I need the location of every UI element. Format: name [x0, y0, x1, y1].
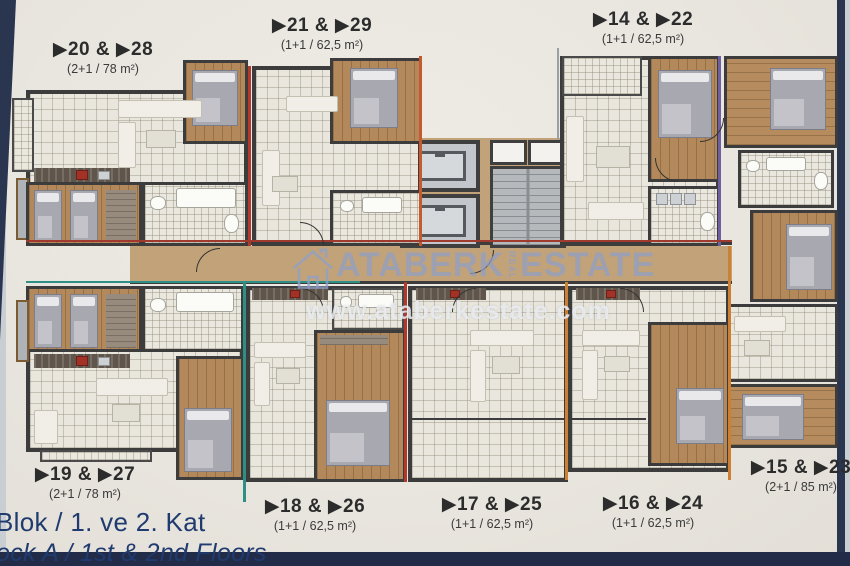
sofa — [582, 350, 598, 400]
sofa — [566, 116, 584, 182]
unit-numbers: ▶14 & ▶22 — [593, 8, 693, 31]
stair-window-1 — [490, 140, 527, 165]
unit-label-21-29: ▶21 & ▶29 (1+1 / 62,5 m²) — [272, 14, 372, 52]
sofa — [254, 362, 270, 406]
unit-numbers: ▶19 & ▶27 — [35, 463, 135, 486]
bed — [742, 394, 804, 440]
bed — [70, 190, 98, 242]
toilet-icon — [814, 172, 828, 190]
floor-plan-photo: ATABERK REAL ESTATE www.ataberkestate.co… — [0, 0, 850, 566]
sink-icon — [98, 171, 110, 180]
sink-icon — [150, 298, 166, 312]
unit-numbers: ▶18 & ▶26 — [265, 495, 365, 518]
coffee-table — [492, 356, 520, 374]
stove-icon — [290, 290, 300, 298]
sink-icon — [746, 160, 760, 172]
stove-icon — [76, 356, 88, 366]
sofa — [96, 378, 168, 396]
balcony — [40, 450, 152, 462]
coffee-table — [112, 404, 140, 422]
balcony — [562, 56, 642, 96]
toilet-icon — [700, 212, 715, 231]
wardrobe — [320, 335, 388, 345]
balcony-wall — [572, 418, 646, 420]
sofa — [254, 342, 306, 358]
bed — [770, 68, 826, 130]
sofa — [118, 122, 136, 168]
wardrobe — [106, 294, 136, 348]
unit-label-16-24: ▶16 & ▶24 (1+1 / 62,5 m²) — [603, 492, 703, 530]
divider-orange-bottom-2 — [728, 246, 731, 480]
unit-label-18-26: ▶18 & ▶26 (1+1 / 62,5 m²) — [265, 495, 365, 533]
staircase — [490, 166, 566, 248]
sink-icon — [340, 296, 352, 308]
vanity-icon — [670, 193, 682, 205]
divider-orange-top — [419, 56, 422, 246]
unit-spec: (1+1 / 62,5 m²) — [593, 32, 693, 46]
unit-label-17-25: ▶17 & ▶25 (1+1 / 62,5 m²) — [442, 493, 542, 531]
sink-icon — [98, 357, 110, 366]
bed — [34, 294, 62, 348]
unit-label-19-27: ▶19 & ▶27 (2+1 / 78 m²) — [35, 463, 135, 501]
vanity-icon — [684, 193, 696, 205]
caption-turkish: Blok / 1. ve 2. Kat — [0, 509, 267, 536]
coffee-table — [744, 340, 770, 356]
bed — [184, 408, 232, 472]
sink-icon — [340, 200, 354, 212]
vanity-icon — [656, 193, 668, 205]
bathtub-icon — [176, 188, 236, 208]
unit-spec: (2+1 / 78 m²) — [35, 487, 135, 501]
core-outer-wall-line — [557, 48, 559, 140]
shower-icon — [358, 294, 394, 308]
stove-icon — [606, 290, 616, 298]
unit-label-14-22: ▶14 & ▶22 (1+1 / 62,5 m²) — [593, 8, 693, 46]
unit-numbers: ▶20 & ▶28 — [53, 38, 153, 61]
accent-line-teal — [26, 281, 360, 283]
toilet-icon — [224, 214, 239, 233]
window-glass — [16, 300, 29, 362]
balcony — [12, 98, 34, 172]
plan-caption: Blok / 1. ve 2. Kat ock A / 1st & 2nd Fl… — [0, 509, 267, 566]
divider-teal — [243, 282, 246, 502]
coffee-table — [146, 130, 176, 148]
bed — [676, 388, 724, 444]
sofa — [118, 100, 202, 118]
unit-numbers: ▶17 & ▶25 — [442, 493, 542, 516]
balcony-wall — [412, 418, 564, 420]
unit-numbers: ▶15 & ▶23 — [751, 456, 850, 479]
bed — [326, 400, 390, 466]
shower-icon — [362, 197, 402, 213]
sofa — [734, 316, 786, 332]
divider-red-top — [248, 66, 251, 246]
unit-spec: (2+1 / 78 m²) — [53, 62, 153, 76]
unit-17-25-living — [408, 286, 568, 482]
divider-purple — [718, 56, 721, 246]
unit-spec: (2+1 / 85 m²) — [751, 480, 850, 494]
corridor — [130, 246, 732, 284]
coffee-table — [604, 356, 630, 372]
accent-line-red — [26, 240, 732, 242]
unit-spec: (1+1 / 62,5 m²) — [442, 517, 542, 531]
sofa — [582, 330, 640, 346]
unit-spec: (1+1 / 62,5 m²) — [272, 38, 372, 52]
sofa — [470, 350, 486, 402]
sofa — [470, 330, 534, 346]
caption-english: ock A / 1st & 2nd Floors — [0, 540, 267, 566]
sofa — [286, 96, 338, 112]
bathtub-icon — [176, 292, 234, 312]
bed — [70, 294, 98, 348]
unit-spec: (1+1 / 62,5 m²) — [603, 516, 703, 530]
bed — [350, 68, 398, 128]
divider-orange-bottom-1 — [565, 282, 568, 480]
coffee-table — [596, 146, 630, 168]
tv-unit — [276, 368, 300, 384]
stove-icon — [76, 170, 88, 180]
sofa — [588, 202, 644, 220]
coffee-table — [272, 176, 298, 192]
armchair — [34, 410, 58, 444]
unit-label-20-28: ▶20 & ▶28 (2+1 / 78 m²) — [53, 38, 153, 76]
unit-numbers: ▶16 & ▶24 — [603, 492, 703, 515]
bed — [786, 224, 832, 290]
unit-spec: (1+1 / 62,5 m²) — [265, 519, 365, 533]
sink-icon — [150, 196, 166, 210]
unit-numbers: ▶21 & ▶29 — [272, 14, 372, 37]
unit-label-15-23: ▶15 & ▶23 (2+1 / 85 m²) — [751, 456, 850, 494]
wardrobe — [106, 190, 136, 242]
divider-red-bottom — [404, 282, 407, 482]
shower-icon — [766, 157, 806, 171]
bed — [34, 190, 62, 242]
